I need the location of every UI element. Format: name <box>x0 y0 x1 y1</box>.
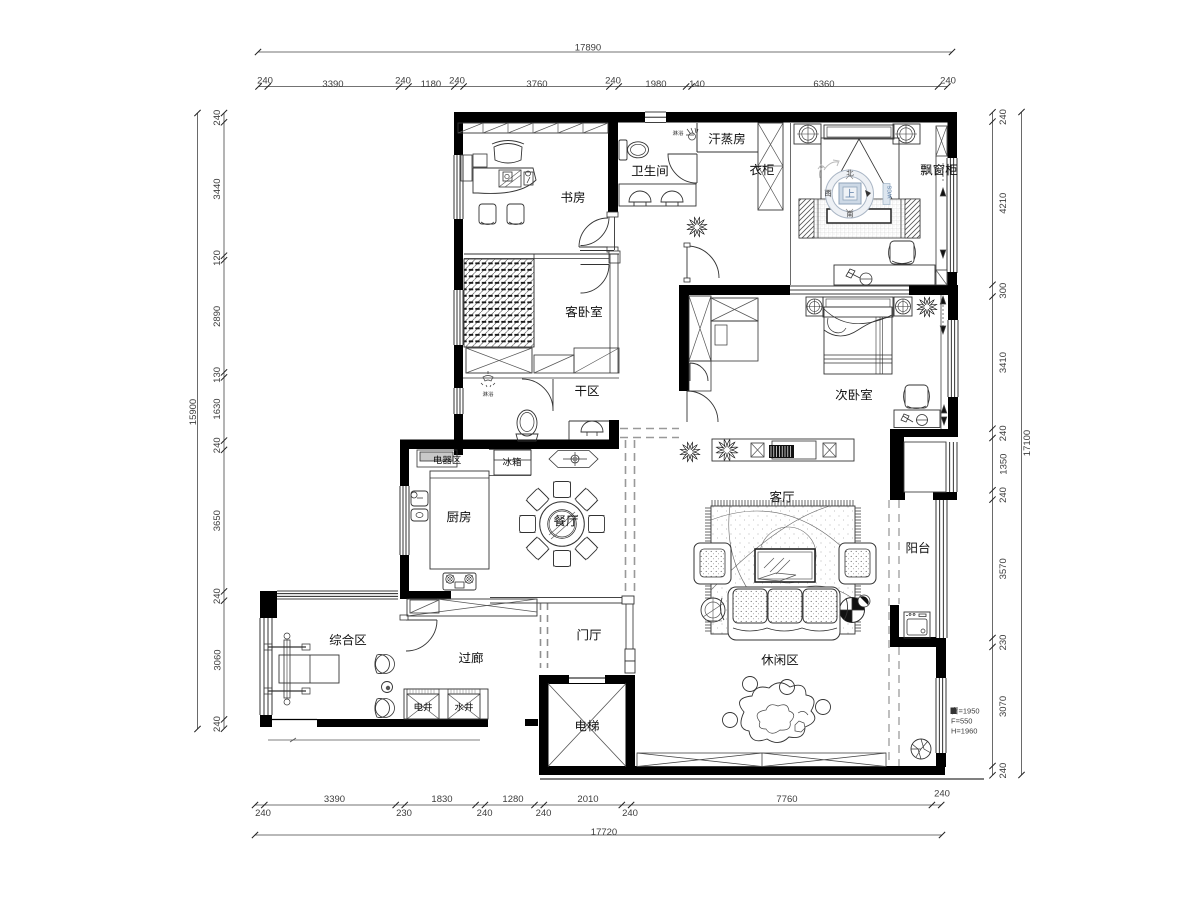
svg-text:3440: 3440 <box>212 178 223 199</box>
svg-text:240: 240 <box>998 425 1009 441</box>
svg-text:240: 240 <box>212 437 223 453</box>
svg-text:1350: 1350 <box>998 454 1009 475</box>
svg-text:17100: 17100 <box>1022 430 1033 456</box>
svg-text:240: 240 <box>622 808 638 819</box>
svg-text:240: 240 <box>536 808 552 819</box>
svg-text:240: 240 <box>255 808 271 819</box>
svg-text:1630: 1630 <box>212 398 223 419</box>
svg-text:17890: 17890 <box>575 43 601 54</box>
svg-text:WCS: WCS <box>888 185 894 198</box>
svg-text:17720: 17720 <box>591 827 617 838</box>
svg-text:240: 240 <box>395 76 411 87</box>
svg-text:F=550: F=550 <box>951 717 972 726</box>
svg-text:6360: 6360 <box>813 79 834 90</box>
svg-text:230: 230 <box>396 808 412 819</box>
svg-text:300: 300 <box>998 283 1009 299</box>
svg-text:240: 240 <box>257 76 273 87</box>
svg-text:240: 240 <box>940 76 956 87</box>
svg-text:3760: 3760 <box>526 79 547 90</box>
svg-text:1180: 1180 <box>421 79 441 90</box>
svg-text:1980: 1980 <box>645 79 666 90</box>
svg-text:240: 240 <box>998 487 1009 503</box>
svg-text:2890: 2890 <box>212 306 223 327</box>
svg-text:1830: 1830 <box>431 794 452 805</box>
svg-text:240: 240 <box>449 76 465 87</box>
svg-text:2010: 2010 <box>577 794 598 805</box>
svg-text:7760: 7760 <box>776 794 797 805</box>
svg-text:240: 240 <box>212 588 223 604</box>
svg-text:240: 240 <box>934 789 950 800</box>
svg-text:3390: 3390 <box>322 79 343 90</box>
svg-text:3390: 3390 <box>324 794 345 805</box>
svg-text:240: 240 <box>605 76 621 87</box>
svg-text:3070: 3070 <box>998 696 1009 717</box>
svg-text:240: 240 <box>477 808 493 819</box>
svg-text:240: 240 <box>212 716 223 732</box>
svg-text:H=1960: H=1960 <box>951 727 977 736</box>
svg-text:240: 240 <box>998 109 1009 125</box>
svg-text:130: 130 <box>212 367 223 383</box>
svg-text:230: 230 <box>998 635 1009 651</box>
svg-text:240: 240 <box>212 110 223 126</box>
svg-text:3060: 3060 <box>212 649 223 670</box>
svg-text:3570: 3570 <box>998 558 1009 579</box>
svg-text:3410: 3410 <box>998 352 1009 373</box>
svg-text:240: 240 <box>998 763 1009 779</box>
svg-text:4210: 4210 <box>998 193 1009 214</box>
svg-text:1280: 1280 <box>502 794 523 805</box>
svg-text:120: 120 <box>212 250 223 266</box>
svg-text:15900: 15900 <box>188 399 199 425</box>
svg-text:3650: 3650 <box>212 510 223 531</box>
svg-text:140: 140 <box>689 79 705 90</box>
